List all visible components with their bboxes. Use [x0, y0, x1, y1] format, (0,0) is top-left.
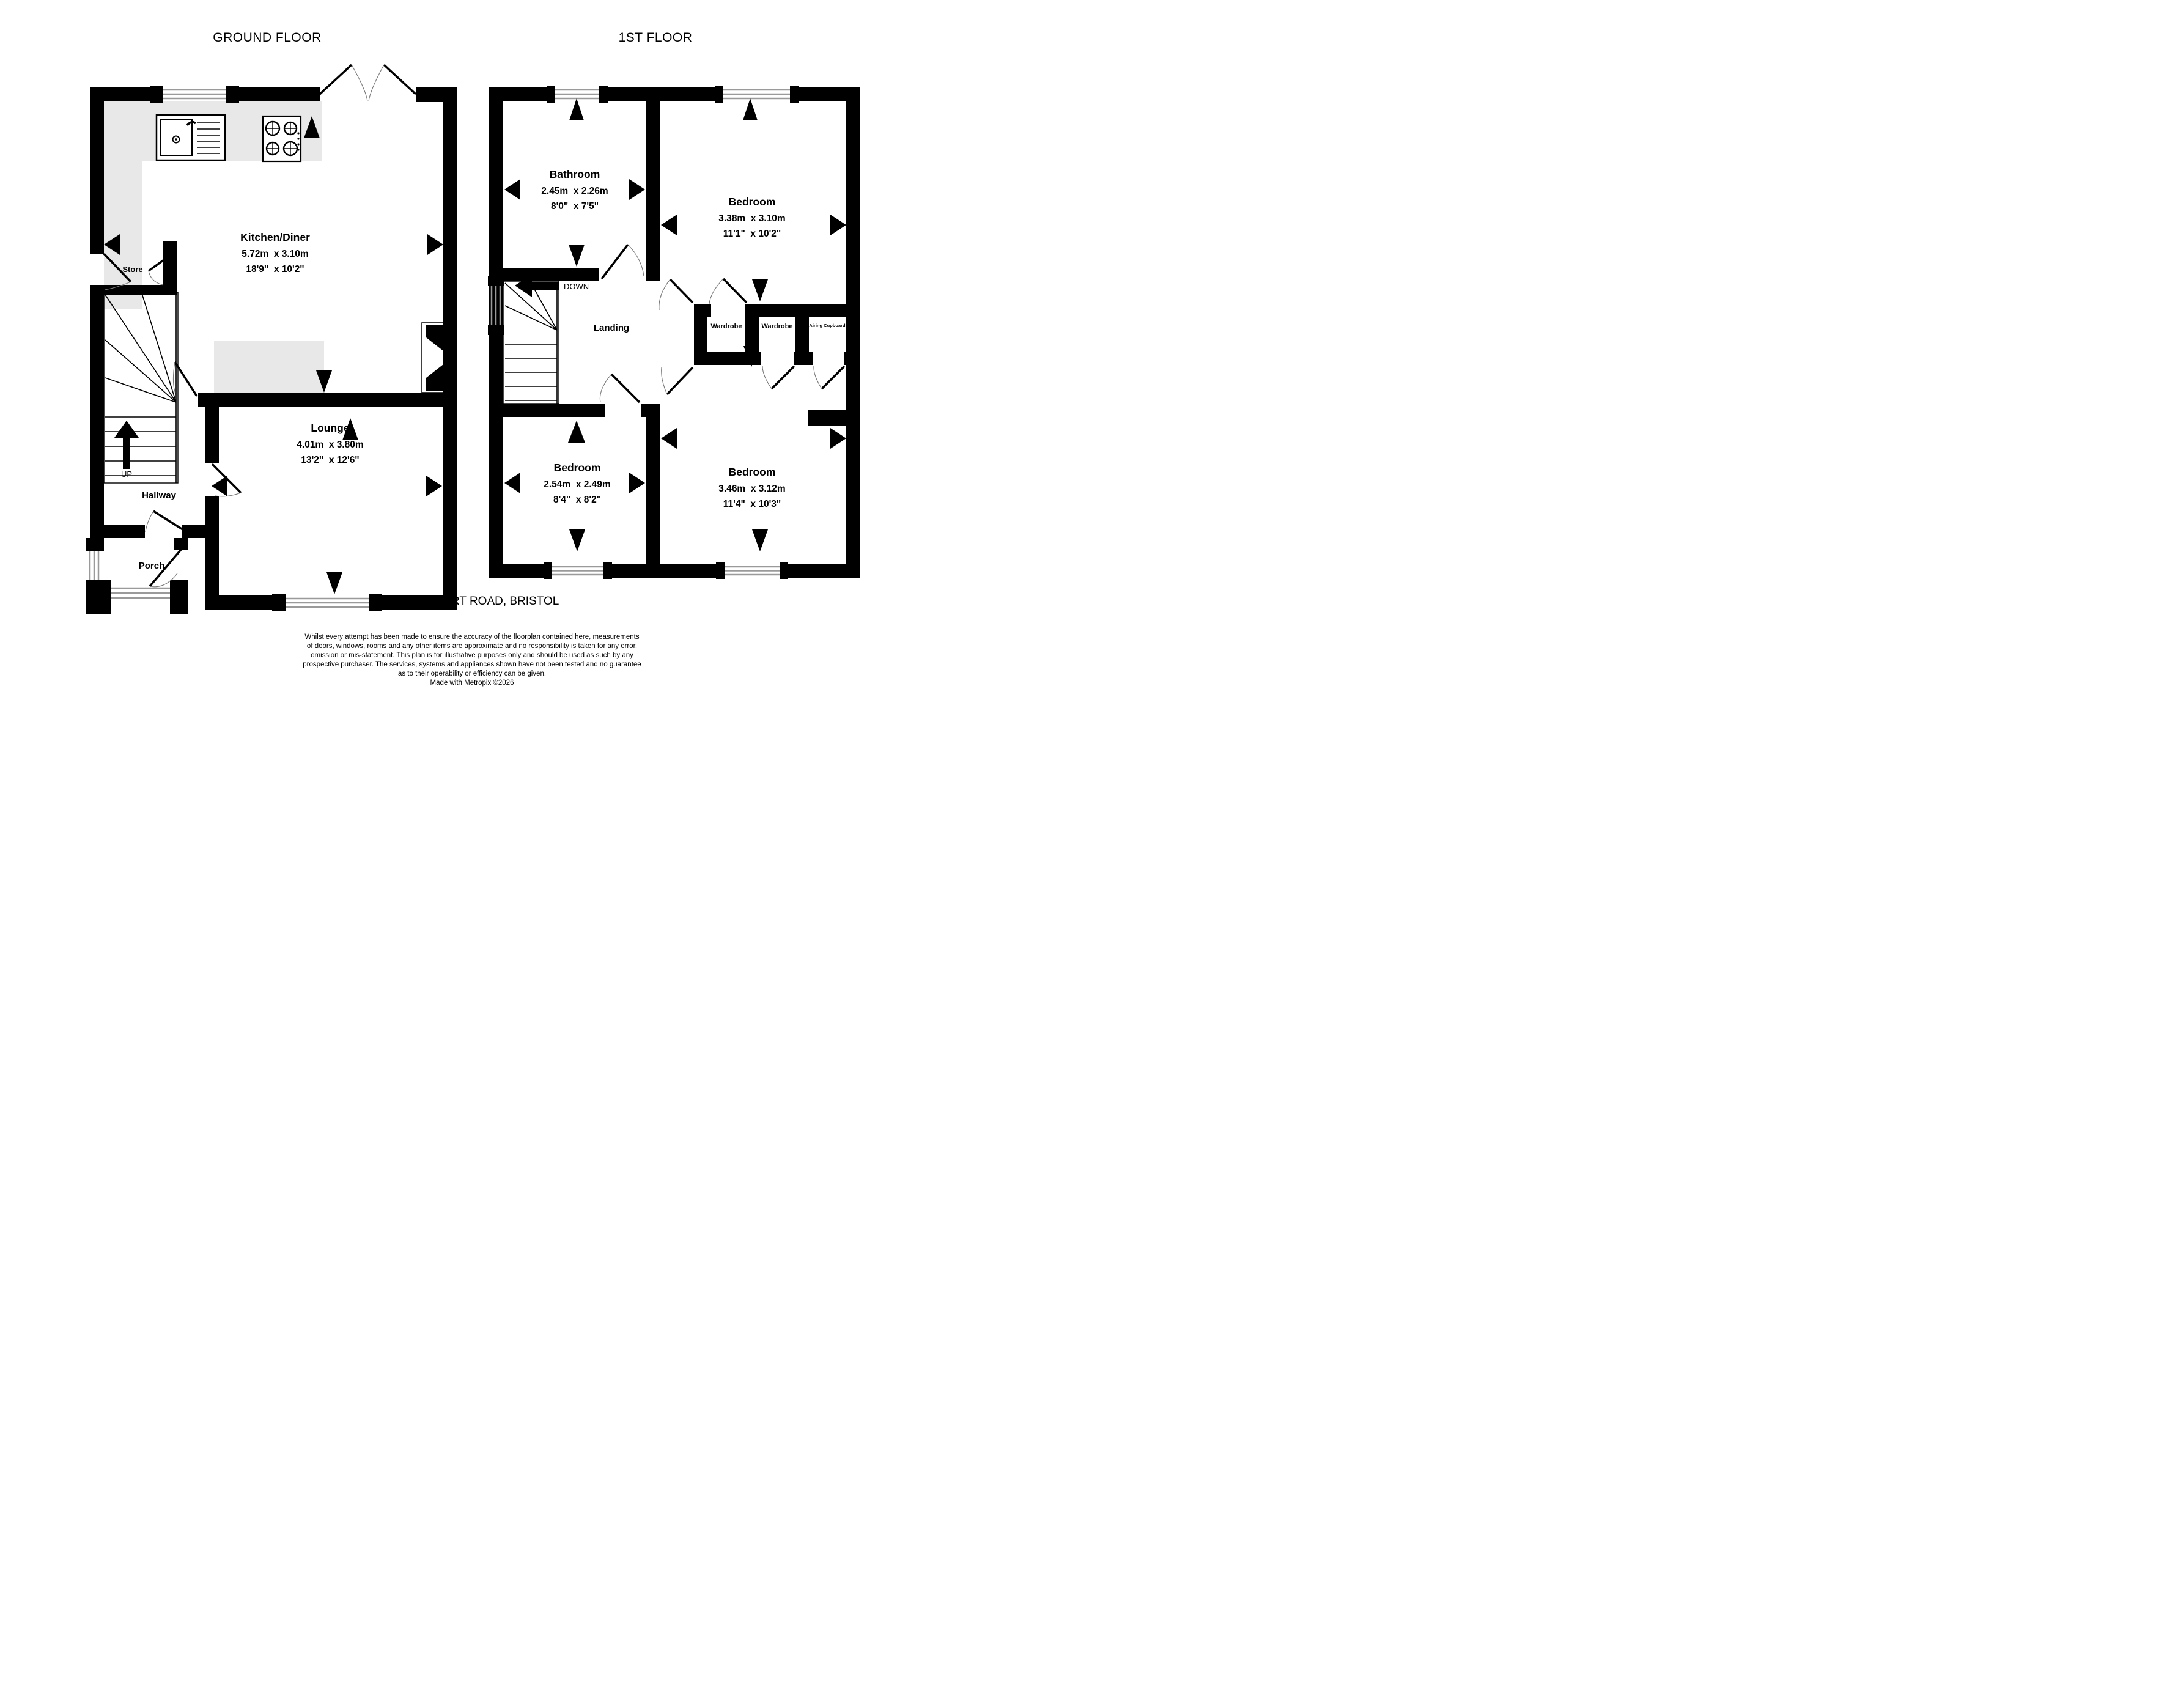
bathroom-window — [555, 90, 599, 98]
porch-structure — [86, 538, 188, 614]
airing-cupboard-label: Airing Cupboard — [809, 323, 846, 328]
window-jamb — [488, 325, 504, 335]
bedroom3-name: Bedroom — [729, 466, 776, 478]
wall-right-exterior — [443, 87, 457, 610]
window-jamb — [603, 562, 612, 579]
bathroom-label: Bathroom 2.45m x 2.26m 8'0" x 7'5" — [541, 168, 608, 212]
bedroom1-metric: 3.38m x 3.10m — [718, 213, 785, 224]
window-jamb — [547, 86, 555, 103]
porch-window-left — [90, 551, 98, 580]
dim-arrow-left — [504, 473, 520, 493]
dim-arrow-up — [569, 98, 584, 120]
wall-segment — [226, 87, 320, 101]
wall-bottom — [489, 564, 544, 578]
bedroom2-imperial: 8'4" x 8'2" — [553, 495, 601, 505]
wall-kitchen-lounge — [198, 393, 457, 407]
dim-arrow-up — [568, 421, 585, 443]
disclaimer-line: omission or mis-statement. This plan is … — [311, 652, 633, 659]
dim-arrow-left — [212, 476, 227, 496]
porch-label: Porch — [139, 561, 165, 571]
porch-post — [174, 538, 188, 550]
wall-landing-bed2 — [503, 404, 605, 417]
dim-arrow-right — [830, 428, 846, 449]
bathroom-door — [602, 245, 644, 279]
bedroom2-name: Bedroom — [554, 462, 601, 474]
bedroom3-imperial: 11'4" x 10'3" — [723, 499, 781, 509]
wall-right-exterior — [846, 87, 860, 578]
bedroom1-window — [723, 90, 790, 98]
window-jamb — [544, 562, 552, 579]
front-door — [146, 511, 186, 532]
property-address: LYPPINCOURT ROAD, BRISTOL — [385, 595, 559, 608]
kitchen-label: Kitchen/Diner 5.72m x 3.10m 18'9" x 10'2… — [240, 231, 310, 275]
dim-arrow-down — [752, 279, 768, 301]
wall-hall-lounge — [205, 496, 219, 595]
disclaimer-line: as to their operability or efficiency ca… — [398, 670, 546, 677]
fireplace — [422, 323, 443, 393]
disclaimer-line: of doors, windows, rooms and any other i… — [307, 643, 637, 650]
dim-arrow-right — [629, 179, 645, 200]
bedroom2-metric: 2.54m x 2.49m — [544, 479, 610, 490]
dim-arrow-right — [427, 234, 443, 255]
ground-floor-title: GROUND FLOOR — [213, 31, 322, 45]
down-label: DOWN — [564, 282, 589, 291]
chimney-breast — [808, 410, 846, 426]
wall-wardrobe-divider — [795, 304, 809, 365]
disclaimer-line: prospective purchaser. The services, sys… — [303, 661, 641, 668]
bedroom1-name: Bedroom — [729, 196, 776, 208]
dim-arrow-right — [830, 215, 846, 235]
wall-hall-lounge — [205, 407, 219, 463]
bedroom1-imperial: 11'1" x 10'2" — [723, 229, 781, 239]
dim-arrow-down — [326, 572, 342, 594]
disclaimer-block: Whilst every attempt has been made to en… — [303, 633, 641, 687]
store-label: Store — [122, 265, 142, 274]
kitchen-metric: 5.72m x 3.10m — [242, 249, 308, 259]
disclaimer-line: Whilst every attempt has been made to en… — [304, 633, 639, 641]
bathroom-name: Bathroom — [550, 168, 600, 180]
lounge-imperial: 13'2" x 12'6" — [301, 455, 359, 465]
wall-bottom — [612, 564, 716, 578]
dim-arrow-up — [743, 98, 758, 120]
dim-arrow-down — [752, 529, 768, 551]
wall-hall-bottom — [90, 525, 145, 538]
bedroom3-label: Bedroom 3.46m x 3.12m 11'4" x 10'3" — [718, 466, 785, 509]
dim-arrow-down — [569, 529, 585, 551]
wall-left-exterior — [90, 292, 104, 525]
window-jamb — [599, 86, 608, 103]
wall-store-right — [163, 241, 177, 295]
stairs-first: DOWN — [503, 275, 589, 404]
wall-bottom — [788, 564, 860, 578]
sink-icon — [157, 115, 225, 160]
landing-label: Landing — [594, 323, 629, 333]
wall-hall-bottom — [182, 525, 219, 538]
kitchen-imperial: 18'9" x 10'2" — [246, 264, 304, 275]
first-floor-title: 1ST FLOOR — [619, 31, 693, 45]
bedroom1-label: Bedroom 3.38m x 3.10m 11'1" x 10'2" — [718, 196, 785, 239]
wall-lounge-bottom — [205, 595, 272, 610]
bedroom3-window — [725, 567, 780, 575]
lounge-metric: 4.01m x 3.80m — [297, 440, 363, 450]
kitchen-island-counter — [214, 341, 324, 394]
wall-left-exterior — [90, 87, 104, 254]
bedroom2-label: Bedroom 2.54m x 2.49m 8'4" x 8'2" — [544, 462, 610, 505]
wall-bath-bottom — [503, 268, 599, 281]
bedroom3-metric: 3.46m x 3.12m — [718, 484, 785, 494]
wardrobe1-label: Wardrobe — [711, 323, 742, 330]
dim-arrow-left — [504, 179, 520, 200]
first-floor-plan: DOWN — [488, 86, 860, 579]
dim-arrow-left — [661, 428, 677, 449]
window-jamb — [369, 594, 382, 611]
dim-arrow-right — [426, 476, 442, 496]
bathroom-metric: 2.45m x 2.26m — [541, 186, 608, 196]
wall-bed2-bed3 — [646, 404, 660, 564]
bathroom-imperial: 8'0" x 7'5" — [551, 201, 599, 212]
hob-icon — [263, 116, 301, 161]
metropix-credit: Made with Metropix ©2026 — [430, 679, 514, 687]
window-jamb — [488, 276, 504, 286]
lounge-window — [286, 599, 369, 607]
floorplan-canvas: GROUND FLOOR 1ST FLOOR — [0, 0, 945, 730]
stairs-ground: UP — [104, 292, 178, 483]
window-jamb — [716, 562, 725, 579]
wall-wardrobe-left — [694, 304, 707, 365]
dim-arrow-down — [569, 245, 585, 267]
bedroom2-window — [552, 567, 603, 575]
wall-segment — [608, 87, 715, 101]
kitchen-name: Kitchen/Diner — [240, 231, 310, 243]
dim-arrow-right — [629, 473, 645, 493]
window-jamb — [790, 86, 799, 103]
window-jamb — [780, 562, 788, 579]
french-doors — [320, 65, 416, 101]
window-jamb — [226, 86, 239, 103]
up-label: UP — [121, 470, 132, 479]
airing-cupboard-door — [814, 366, 844, 389]
bedroom1-door — [659, 279, 693, 310]
kitchen-window — [163, 90, 226, 98]
lounge-name: Lounge — [311, 422, 349, 434]
wall-wardrobe-bottom — [844, 352, 860, 365]
porch-window-bottom — [111, 588, 170, 598]
ground-floor-plan: UP — [86, 65, 457, 614]
window-jamb — [150, 86, 163, 103]
porch-post — [86, 580, 111, 614]
bedroom3-door — [662, 367, 693, 394]
hallway-label: Hallway — [142, 490, 177, 501]
wardrobe2-label: Wardrobe — [762, 323, 793, 330]
wall-bath-bed1 — [646, 101, 660, 281]
bedroom2-door — [600, 374, 640, 402]
porch-post — [86, 538, 104, 551]
up-arrow — [114, 421, 139, 469]
kitchen-hall-door — [173, 362, 197, 396]
porch-post — [170, 580, 188, 614]
window-jamb — [272, 594, 286, 611]
wardrobe2-door — [762, 366, 794, 389]
wardrobe1-door — [709, 279, 747, 304]
dim-arrow-left — [661, 215, 677, 235]
window-jamb — [715, 86, 723, 103]
